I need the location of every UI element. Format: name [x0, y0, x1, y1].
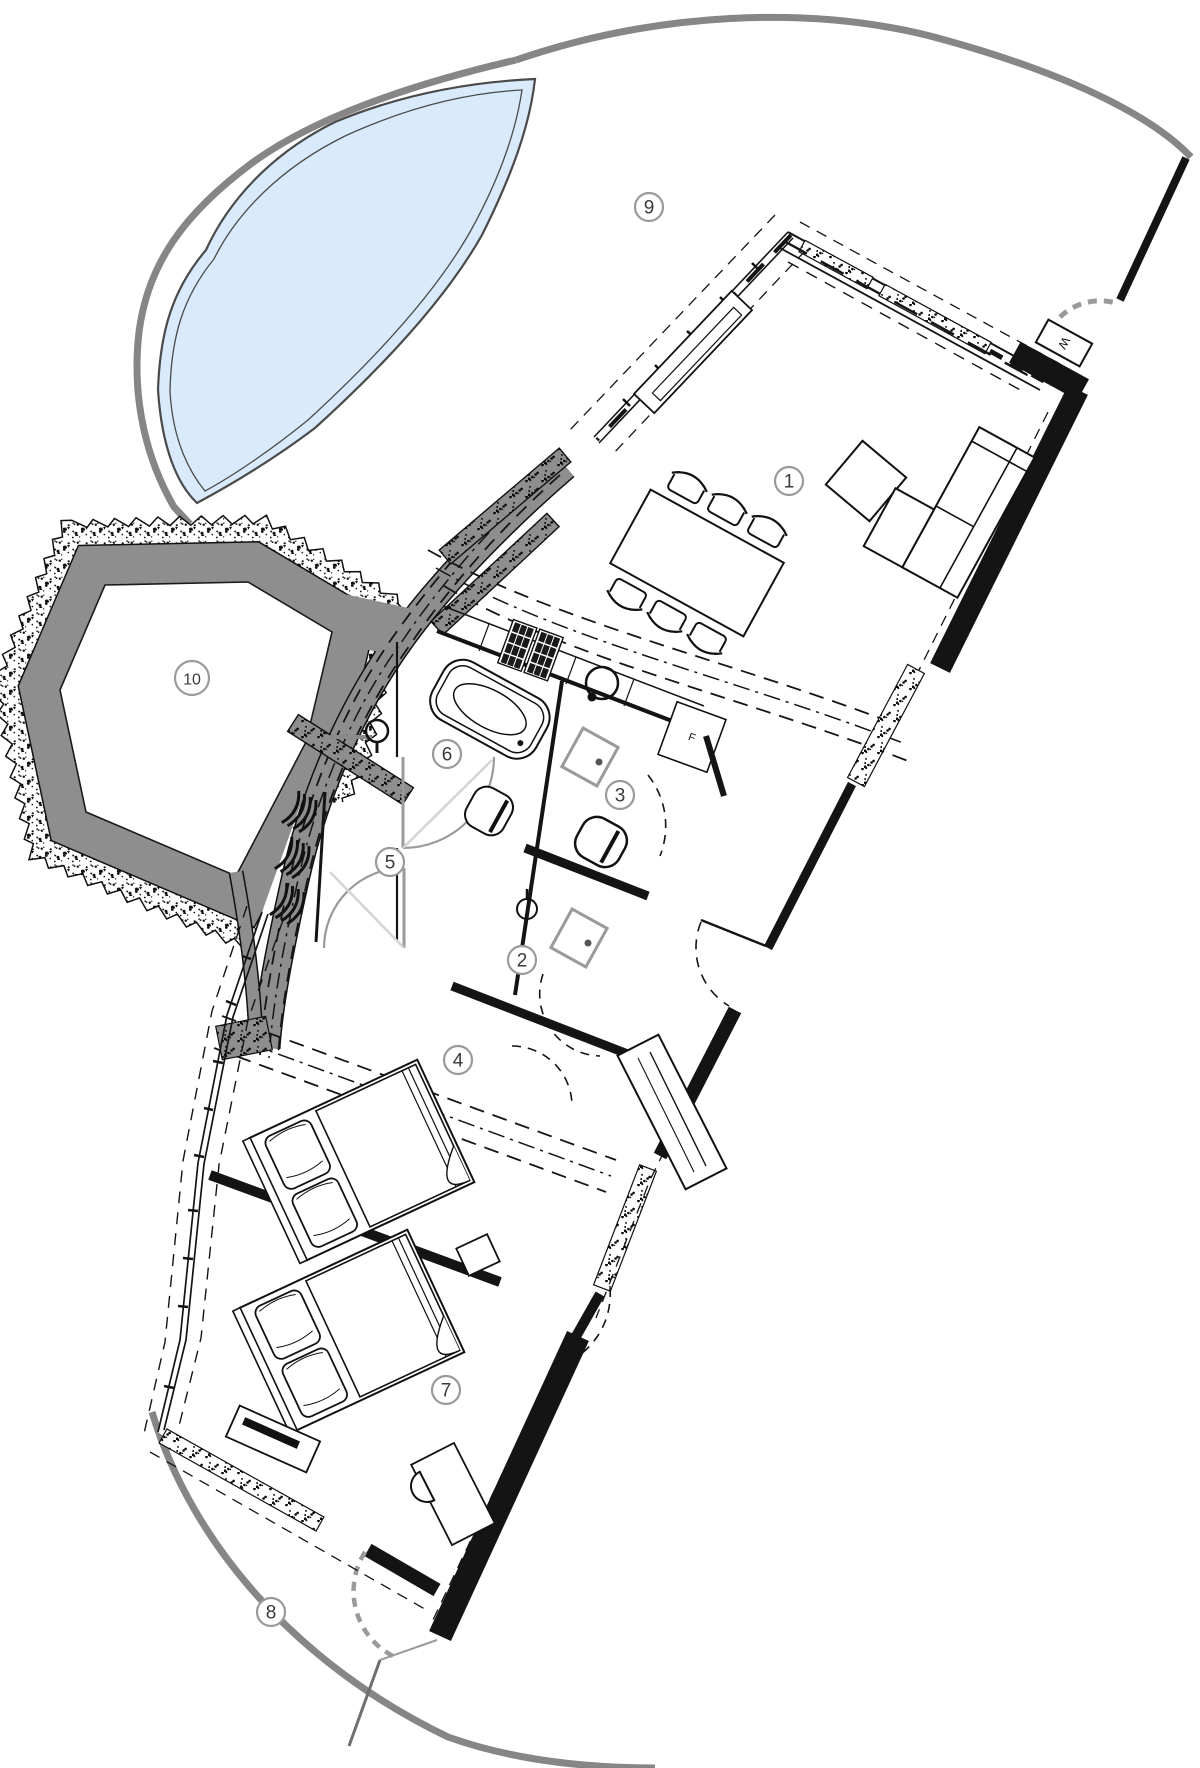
- svg-text:1: 1: [784, 472, 795, 493]
- svg-text:7: 7: [441, 1381, 452, 1402]
- svg-text:4: 4: [453, 1051, 464, 1072]
- svg-text:6: 6: [442, 745, 453, 766]
- svg-text:9: 9: [644, 198, 655, 219]
- svg-text:8: 8: [266, 1603, 277, 1624]
- svg-text:3: 3: [615, 786, 626, 807]
- svg-text:10: 10: [183, 672, 201, 689]
- svg-text:5: 5: [385, 853, 396, 874]
- svg-text:2: 2: [517, 951, 528, 972]
